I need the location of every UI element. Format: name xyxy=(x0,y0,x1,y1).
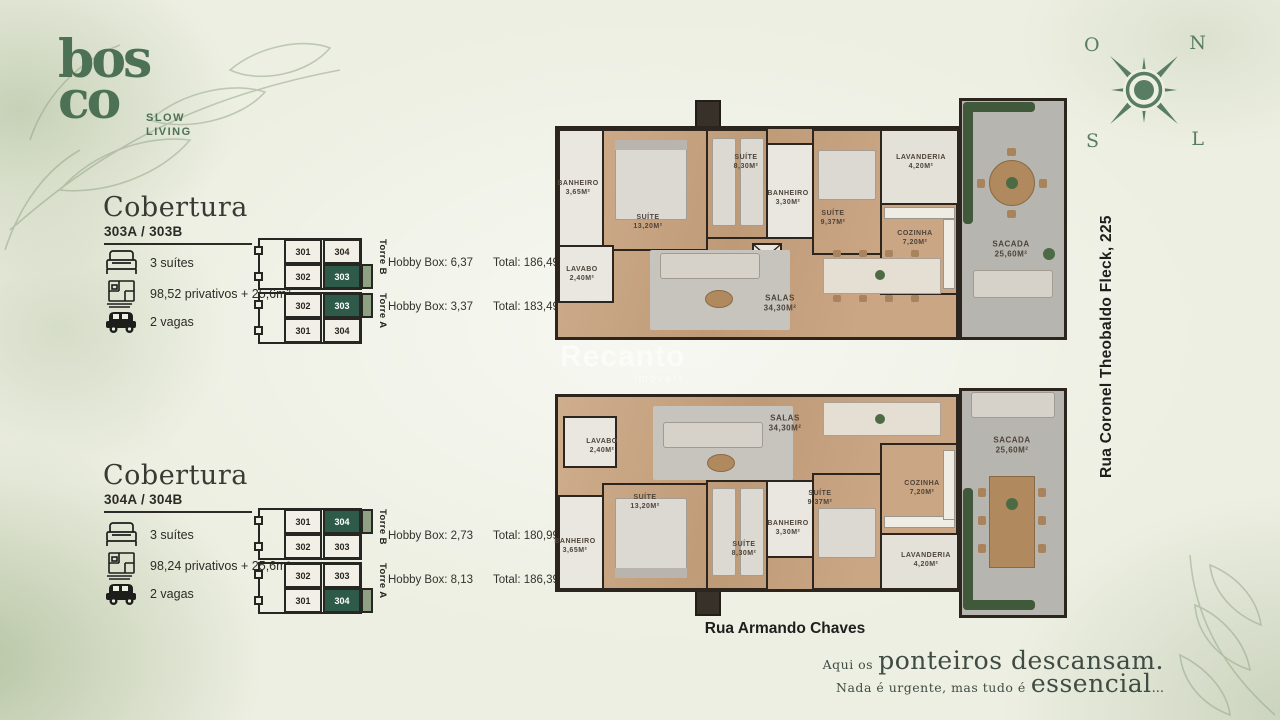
floorplan-icon xyxy=(105,551,138,580)
unit-cell: 301 xyxy=(284,588,322,613)
section1-title: Cobertura xyxy=(103,192,248,223)
compass-rose: O N S L xyxy=(1078,26,1210,154)
logo-tagline: SLOW LIVING xyxy=(146,112,192,140)
unit-cell: 304 xyxy=(323,239,361,264)
coffee-table xyxy=(707,454,735,472)
balcony-strip xyxy=(361,293,373,318)
unit-cell: 301 xyxy=(284,509,322,534)
car-icon xyxy=(105,309,138,334)
rect-table xyxy=(989,476,1035,568)
sofa xyxy=(660,253,760,279)
bed-single xyxy=(740,138,764,226)
bed-single xyxy=(712,138,736,226)
chair xyxy=(978,516,986,525)
torre-label: Torre A xyxy=(377,293,388,345)
chair xyxy=(885,250,893,257)
torre-label: Torre B xyxy=(377,509,388,561)
chair xyxy=(1007,148,1016,156)
balcony-strip xyxy=(361,588,373,613)
outline-notch xyxy=(254,542,263,551)
chair xyxy=(859,250,867,257)
chair xyxy=(1038,488,1046,497)
room-label: LAVANDERIA4,20M² xyxy=(901,551,951,569)
room-label: SALAS34,30M² xyxy=(769,414,802,435)
coffee-table xyxy=(705,290,733,308)
chair xyxy=(977,179,985,188)
room-label: LAVABO2,40M² xyxy=(566,265,598,283)
tower-diagram-303-torre-a: 302 303 301 304 Torre A xyxy=(258,292,362,344)
room-label: SUÍTE8,30M² xyxy=(732,540,757,558)
bed-icon xyxy=(105,521,138,548)
outline-notch xyxy=(254,570,263,579)
floorplan-icon xyxy=(105,279,138,308)
balcony-strip xyxy=(361,509,373,534)
street-label-bottom: Rua Armando Chaves xyxy=(640,620,930,638)
chair xyxy=(859,295,867,302)
spec-label: 2 vagas xyxy=(150,315,194,329)
brochure-canvas: bos co SLOW LIVING O N S L xyxy=(0,0,1280,720)
spec-label: 3 suítes xyxy=(150,256,194,270)
room-label: SUÍTE13,20M² xyxy=(633,213,662,231)
outline-notch xyxy=(254,246,263,255)
chair xyxy=(885,295,893,302)
terrace-plant xyxy=(1043,248,1055,260)
kitchen-counter xyxy=(884,207,955,219)
room-label: SALAS34,30M² xyxy=(764,294,797,315)
tower-diagram-304-torre-a: 302 303 301 304 Torre A xyxy=(258,562,362,614)
chair xyxy=(1038,516,1046,525)
kitchen-counter xyxy=(943,450,955,520)
chair xyxy=(833,250,841,257)
outline-notch xyxy=(254,326,263,335)
stair-shaft xyxy=(695,100,721,128)
chair xyxy=(833,295,841,302)
balcony-strip xyxy=(361,264,373,289)
unit-cell-highlighted: 303 xyxy=(323,293,361,318)
tower-diagram-304-torre-b: 301 304 302 303 Torre B xyxy=(258,508,362,560)
room-label: BANHEIRO3,65M² xyxy=(557,179,598,197)
chair xyxy=(978,544,986,553)
chair xyxy=(1039,179,1047,188)
unit-cell: 304 xyxy=(323,318,361,343)
room-label: BANHEIRO3,30M² xyxy=(767,189,808,207)
unit-cell: 302 xyxy=(284,264,322,289)
section2-title: Cobertura xyxy=(103,460,248,491)
unit-cell: 301 xyxy=(284,239,322,264)
bed-headboard xyxy=(615,140,687,150)
bosco-logo: bos co SLOW LIVING xyxy=(58,40,149,121)
chair xyxy=(978,488,986,497)
unit-cell-highlighted: 303 xyxy=(323,264,361,289)
street-label-right: Rua Coronel Theobaldo Fleck, 225 xyxy=(1098,210,1116,478)
compass-star-icon xyxy=(1096,42,1192,138)
torre-label: Torre B xyxy=(377,239,388,291)
hedge xyxy=(963,102,1035,112)
room-label: BANHEIRO3,65M² xyxy=(554,537,595,555)
spec-label: 3 suítes xyxy=(150,528,194,542)
outdoor-sofa xyxy=(973,270,1053,298)
hedge xyxy=(963,488,973,610)
section1-spec-suites: 3 suítes xyxy=(105,249,194,276)
table-plant xyxy=(1006,177,1018,189)
upper-floorplan: BANHEIRO3,65M² SUÍTE13,20M² SUÍTE8,30M² … xyxy=(555,98,1067,340)
table-plant xyxy=(875,270,885,280)
bed-single xyxy=(712,488,736,576)
spec-label: 2 vagas xyxy=(150,587,194,601)
room-label: SACADA25,60M² xyxy=(992,240,1029,261)
unit-cell: 303 xyxy=(323,563,361,588)
terrace xyxy=(959,98,1067,340)
tagline-quote: Aqui os ponteiros descansam. Nada é urge… xyxy=(604,648,1164,696)
room-label: COZINHA7,20M² xyxy=(904,479,939,497)
room-label: SUÍTE9,37M² xyxy=(821,209,846,227)
bed-headboard xyxy=(615,568,687,578)
kitchen-counter xyxy=(943,219,955,289)
torre-label: Torre A xyxy=(377,563,388,615)
outline-notch xyxy=(254,596,263,605)
outline-notch xyxy=(254,300,263,309)
outline-notch xyxy=(254,516,263,525)
room-label: LAVABO2,40M² xyxy=(586,437,618,455)
unit-cell: 302 xyxy=(284,563,322,588)
chair xyxy=(1007,210,1016,218)
section2-spec-parking: 2 vagas xyxy=(105,581,194,606)
hedge xyxy=(963,600,1035,610)
section2-subtitle: 304A / 304B xyxy=(104,492,183,507)
room-label: LAVANDERIA4,20M² xyxy=(896,153,946,171)
car-icon xyxy=(105,581,138,606)
table-plant xyxy=(1006,498,1018,510)
room-label: BANHEIRO3,30M² xyxy=(767,519,808,537)
bed-double xyxy=(818,508,876,558)
section1-spec-parking: 2 vagas xyxy=(105,309,194,334)
section2-spec-suites: 3 suítes xyxy=(105,521,194,548)
hedge xyxy=(963,102,973,224)
lower-floorplan: BANHEIRO3,65M² SUÍTE13,20M² SUÍTE8,30M² … xyxy=(555,388,1067,620)
bed-single xyxy=(740,488,764,576)
tower-diagram-303-torre-b: 301 304 302 303 Torre B xyxy=(258,238,362,290)
unit-cell: 302 xyxy=(284,534,322,559)
section1-rule xyxy=(104,243,252,245)
table-plant xyxy=(875,414,885,424)
unit-cell-highlighted: 304 xyxy=(323,588,361,613)
bed-double xyxy=(615,140,687,220)
room-label: SUÍTE9,37M² xyxy=(808,489,833,507)
stair-shaft xyxy=(695,590,721,616)
chair xyxy=(911,295,919,302)
bed-icon xyxy=(105,249,138,276)
bed-double xyxy=(818,150,876,200)
compass-east-label: L xyxy=(1191,128,1204,150)
unit-cell: 303 xyxy=(323,534,361,559)
room-label: COZINHA7,20M² xyxy=(897,229,932,247)
chair xyxy=(911,250,919,257)
outdoor-sofa xyxy=(971,392,1055,418)
unit-cell-highlighted: 304 xyxy=(323,509,361,534)
chair xyxy=(1038,544,1046,553)
section2-rule xyxy=(104,511,252,513)
section1-subtitle: 303A / 303B xyxy=(104,224,183,239)
recanto-watermark: Recanto imóveis xyxy=(560,342,685,385)
outline-notch xyxy=(254,272,263,281)
unit-cell: 302 xyxy=(284,293,322,318)
room-label: SUÍTE13,20M² xyxy=(630,493,659,511)
sofa xyxy=(663,422,763,448)
room-label: SUÍTE8,30M² xyxy=(734,153,759,171)
room-label: SACADA25,60M² xyxy=(993,436,1030,457)
unit-cell: 301 xyxy=(284,318,322,343)
